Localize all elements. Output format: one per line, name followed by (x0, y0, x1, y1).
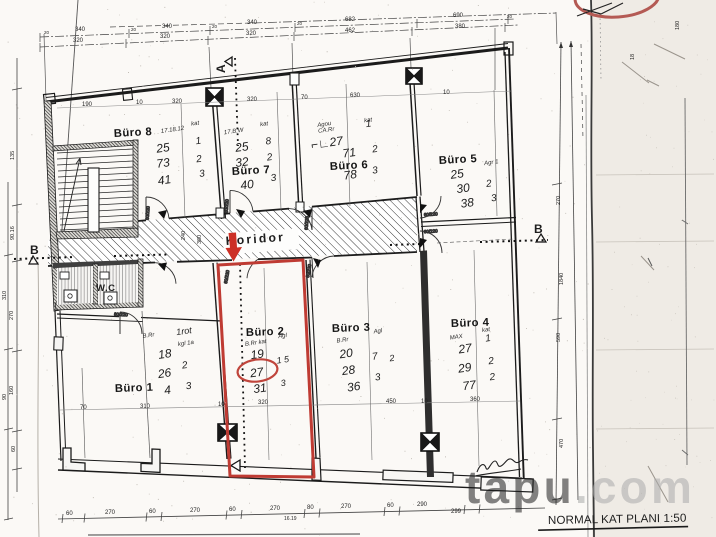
svg-text:18: 18 (630, 54, 636, 60)
svg-text:40: 40 (239, 177, 254, 193)
svg-text:320: 320 (258, 400, 269, 406)
svg-text:B: B (30, 243, 39, 257)
svg-text:590: 590 (556, 333, 562, 342)
svg-text:60: 60 (149, 509, 156, 515)
svg-text:1840: 1840 (559, 273, 565, 285)
svg-text:270: 270 (190, 508, 201, 514)
svg-text:270: 270 (556, 196, 562, 205)
svg-text:310: 310 (2, 291, 8, 300)
svg-text:kat: kat (191, 121, 200, 128)
svg-text:10: 10 (136, 100, 143, 106)
svg-text:60/220: 60/220 (145, 205, 151, 220)
svg-text:78: 78 (343, 167, 358, 183)
svg-text:NORMAL KAT PLANI 1:50: NORMAL KAT PLANI 1:50 (548, 512, 687, 527)
svg-text:360: 360 (470, 397, 481, 403)
svg-text:450: 450 (386, 399, 397, 405)
svg-text:Büro 1: Büro 1 (115, 382, 154, 395)
svg-text:60: 60 (11, 446, 17, 452)
svg-text:20: 20 (337, 346, 353, 362)
svg-text:90: 90 (2, 394, 8, 400)
svg-text:1 5: 1 5 (276, 354, 291, 366)
svg-text:470: 470 (559, 439, 565, 448)
svg-text:18: 18 (157, 346, 172, 362)
svg-text:135: 135 (10, 151, 16, 160)
svg-text:630: 630 (350, 93, 361, 99)
svg-text:16.19: 16.19 (284, 516, 297, 522)
svg-text:80/220: 80/220 (114, 312, 129, 318)
svg-text:90.16: 90.16 (10, 226, 16, 240)
svg-text:690: 690 (453, 13, 464, 19)
svg-text:26: 26 (156, 365, 172, 381)
svg-text:380: 380 (455, 24, 466, 30)
svg-text:25: 25 (448, 166, 464, 182)
svg-text:60: 60 (66, 511, 73, 517)
svg-text:W.C: W.C (96, 283, 115, 294)
svg-text:320: 320 (247, 97, 258, 103)
svg-text:270: 270 (341, 504, 352, 510)
svg-text:160: 160 (9, 386, 15, 395)
svg-text:240: 240 (181, 231, 187, 240)
svg-text:20: 20 (212, 24, 218, 29)
svg-text:60/220: 60/220 (224, 198, 230, 213)
svg-text:20: 20 (297, 21, 303, 26)
svg-text:38: 38 (460, 195, 475, 211)
svg-text:340: 340 (162, 24, 173, 30)
svg-text:682: 682 (345, 17, 356, 23)
svg-text:B: B (534, 222, 543, 236)
svg-text:A: A (214, 64, 228, 73)
svg-text:60: 60 (229, 507, 236, 513)
svg-text:30: 30 (456, 180, 471, 196)
svg-text:340: 340 (247, 20, 258, 26)
svg-text:36: 36 (346, 379, 361, 395)
svg-text:290: 290 (417, 502, 428, 508)
svg-text:60/220: 60/220 (424, 211, 439, 217)
svg-text:32: 32 (234, 154, 249, 170)
svg-text:320: 320 (246, 31, 257, 37)
svg-text:299: 299 (451, 509, 462, 515)
svg-text:10: 10 (218, 402, 225, 408)
svg-text:20: 20 (131, 27, 137, 32)
svg-text:Büro 5: Büro 5 (439, 153, 478, 167)
svg-text:Büro 8: Büro 8 (114, 126, 153, 140)
svg-text:70: 70 (301, 95, 308, 101)
svg-text:Büro 3: Büro 3 (332, 322, 371, 335)
svg-text:360: 360 (197, 235, 203, 244)
svg-text:270: 270 (270, 506, 281, 512)
svg-text:10: 10 (443, 90, 450, 96)
svg-text:20: 20 (44, 30, 50, 35)
svg-text:60/220: 60/220 (424, 228, 439, 234)
svg-text:tapu.com: tapu.com (465, 461, 695, 513)
svg-text:25: 25 (233, 139, 249, 155)
svg-text:29: 29 (456, 360, 472, 376)
svg-text:28: 28 (340, 362, 356, 378)
svg-text:25: 25 (154, 140, 170, 156)
svg-text:71: 71 (342, 145, 357, 161)
svg-text:270: 270 (9, 311, 15, 320)
svg-text:462: 462 (345, 28, 356, 34)
svg-text:60/220: 60/220 (304, 215, 310, 230)
svg-text:kat: kat (260, 121, 269, 128)
svg-text:20: 20 (507, 14, 513, 19)
svg-text:320: 320 (160, 34, 171, 40)
svg-text:270: 270 (105, 510, 116, 516)
svg-text:60: 60 (387, 503, 394, 509)
svg-text:340: 340 (75, 27, 86, 33)
svg-text:73: 73 (155, 155, 170, 171)
svg-text:80: 80 (307, 505, 314, 511)
svg-text:10: 10 (421, 399, 428, 405)
svg-text:310: 310 (140, 404, 151, 410)
svg-text:41: 41 (157, 172, 172, 188)
svg-text:190: 190 (82, 102, 93, 108)
svg-text:180: 180 (675, 21, 681, 30)
